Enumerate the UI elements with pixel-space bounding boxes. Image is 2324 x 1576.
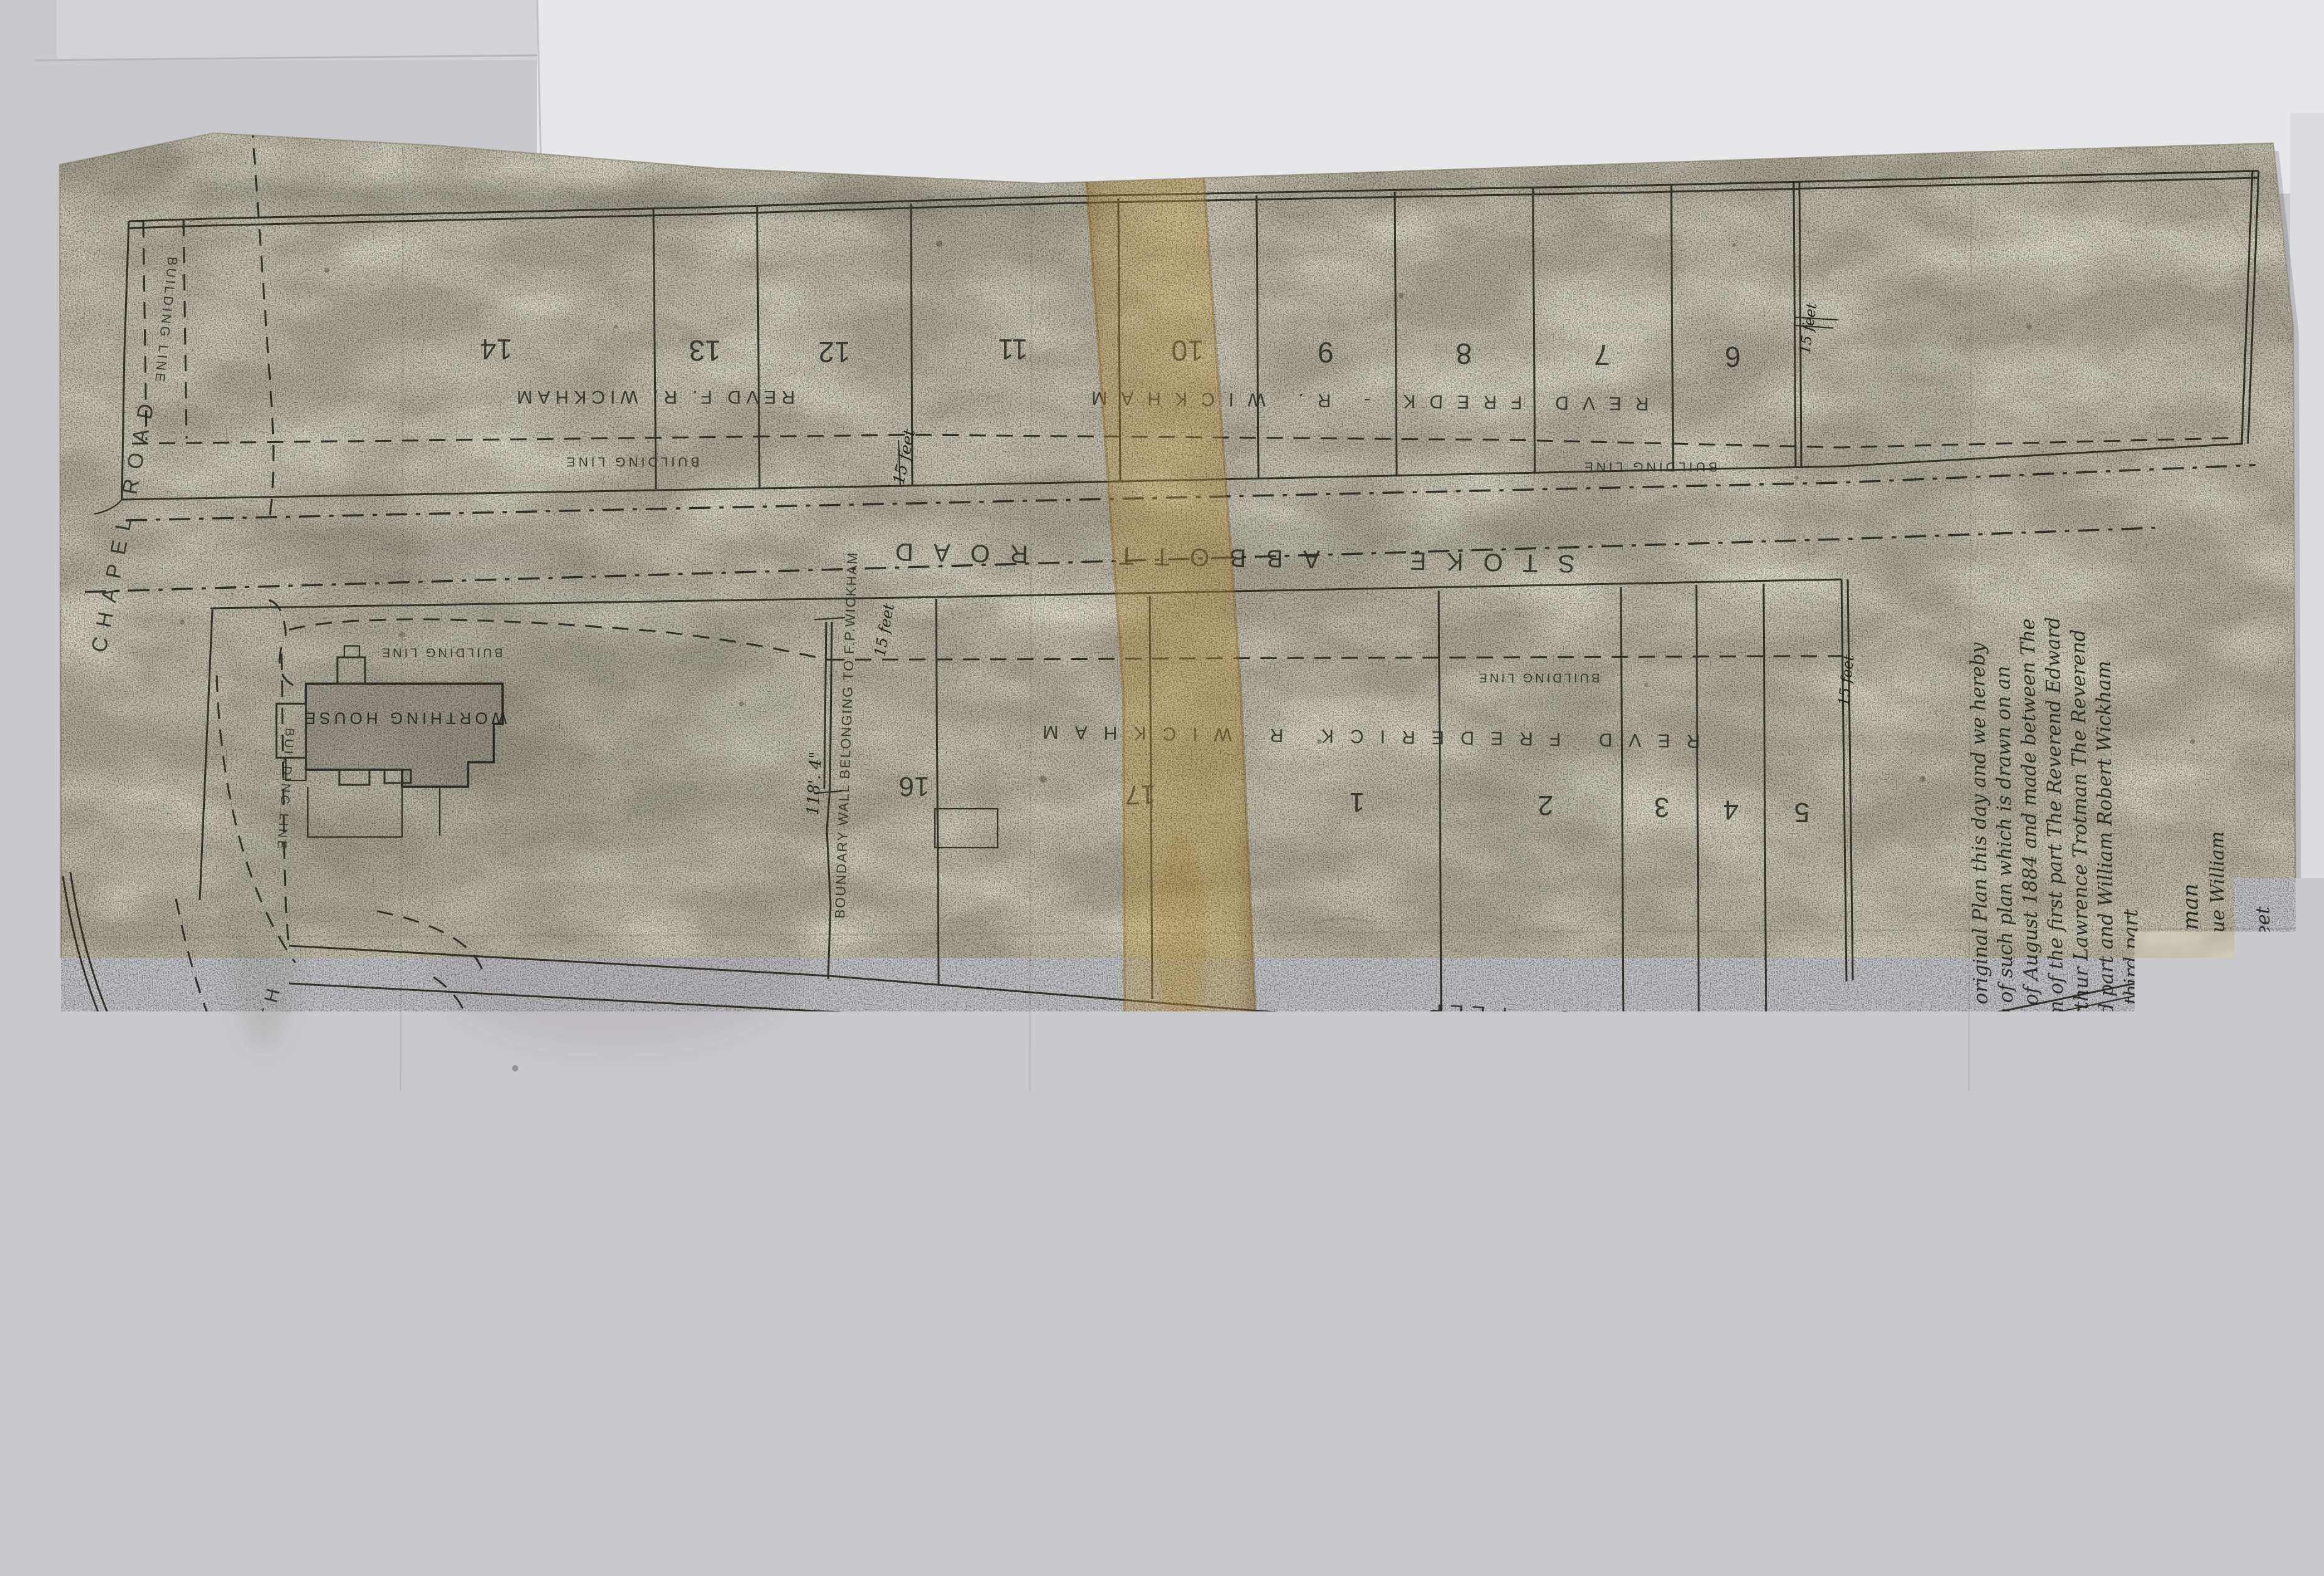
scanned-plan-photograph: 14 13 12 11 10 9 8 7 6 REVD F. R. WICKHA… — [0, 0, 2324, 1576]
plan-canvas: 14 13 12 11 10 9 8 7 6 REVD F. R. WICKHA… — [0, 0, 2324, 1576]
paper-grain — [60, 132, 2296, 1458]
backing-sheet-corner — [57, 0, 540, 60]
